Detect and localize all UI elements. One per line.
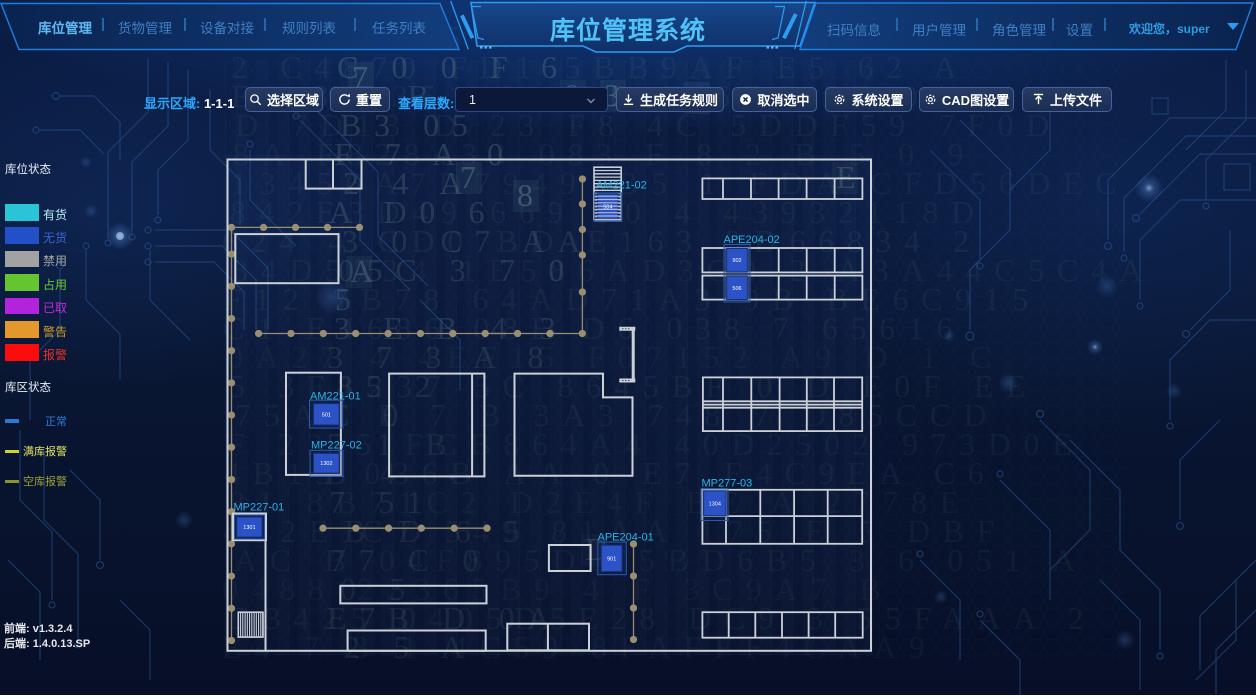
svg-text:MP277-03: MP277-03 [702,478,753,490]
svg-text:MP227-01: MP227-01 [234,502,285,514]
svg-text:1302: 1302 [320,461,332,467]
svg-text:AM221-02: AM221-02 [596,180,647,192]
svg-text:506: 506 [732,286,741,292]
svg-text:902: 902 [732,258,741,264]
svg-text:MP227-02: MP227-02 [311,440,362,452]
svg-text:901: 901 [607,556,616,562]
svg-text:1301: 1301 [243,525,255,531]
svg-text:501: 501 [322,412,331,418]
svg-text:1304: 1304 [709,501,721,507]
